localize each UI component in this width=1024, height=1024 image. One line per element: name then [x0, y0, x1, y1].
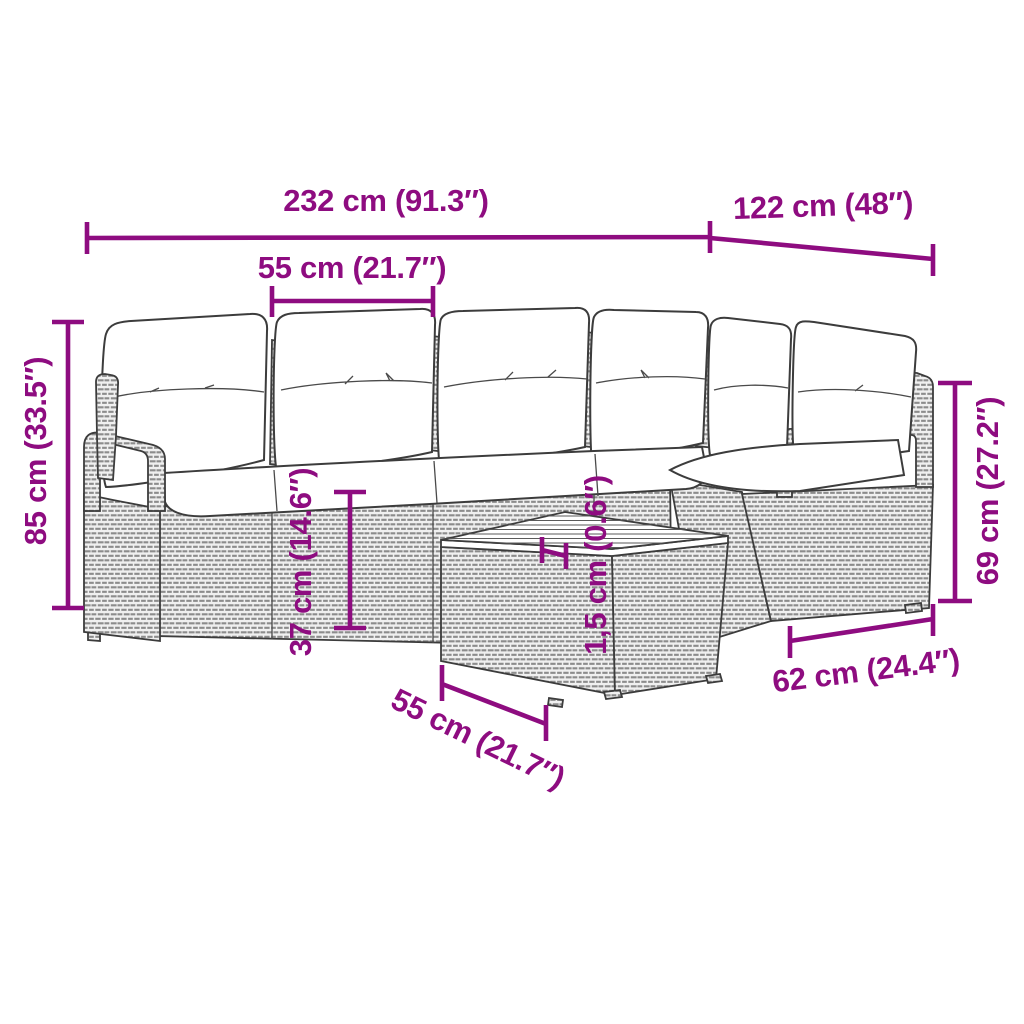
dimension-label-seat-width: 55 cm (21.7″) — [258, 250, 446, 286]
dimension-label-tabletop-thickness: 1,5 cm (0.6″) — [578, 475, 614, 655]
sofa-base-right — [742, 485, 933, 621]
sofa-foot — [905, 603, 922, 613]
back-cushion — [101, 314, 267, 487]
dim-line-total-height — [52, 322, 84, 608]
dim-line-total-depth — [710, 238, 933, 276]
dimension-label-seat-height: 37 cm (14.6″) — [283, 468, 319, 656]
back-cushion — [274, 309, 436, 472]
dimension-label-total-height: 85 cm (33.5″) — [18, 357, 54, 545]
table-foot — [548, 698, 563, 707]
left-armrest-panel — [84, 494, 160, 641]
dimension-label-back-height: 69 cm (27.2″) — [970, 397, 1006, 585]
dimension-diagram: 232 cm (91.3″) 122 cm (48″) 55 cm (21.7″… — [0, 0, 1024, 1024]
back-cushion — [437, 308, 589, 467]
back-cushion — [590, 310, 708, 461]
dim-line-back-height — [938, 383, 972, 601]
diagram-drawing — [0, 0, 1024, 1024]
table-foot — [604, 690, 622, 699]
dimension-label-total-width: 232 cm (91.3″) — [283, 183, 488, 219]
dimension-label-total-depth: 122 cm (48″) — [732, 185, 913, 227]
table-side-right — [612, 543, 728, 695]
back-cushion — [793, 321, 917, 455]
left-armrest-post — [96, 374, 118, 480]
table-foot — [706, 674, 722, 683]
